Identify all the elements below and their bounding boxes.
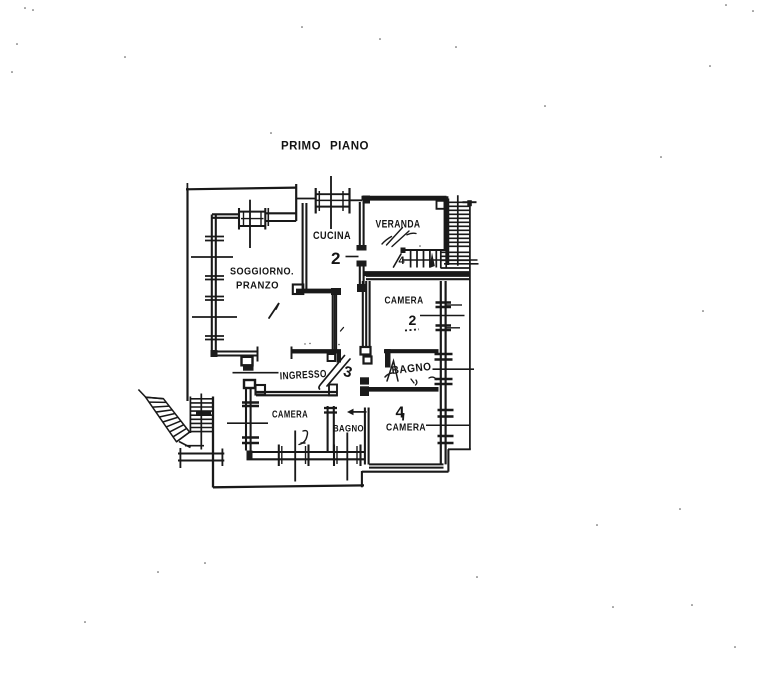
svg-text:CAMERA: CAMERA xyxy=(385,296,424,307)
svg-text:2: 2 xyxy=(331,249,341,268)
svg-text:PRANZO: PRANZO xyxy=(236,281,279,292)
svg-text:VERANDA: VERANDA xyxy=(376,219,421,231)
svg-text:SOGGIORNO.: SOGGIORNO. xyxy=(230,267,294,278)
svg-text:PRIMO: PRIMO xyxy=(281,139,321,153)
svg-text:2: 2 xyxy=(409,312,417,328)
svg-text:4: 4 xyxy=(399,255,406,267)
svg-text:CUCINA: CUCINA xyxy=(313,230,351,242)
svg-text:INGRESSO: INGRESSO xyxy=(280,368,328,382)
svg-text:CAMERA: CAMERA xyxy=(272,410,308,421)
svg-text:BAGNO: BAGNO xyxy=(333,424,364,435)
svg-text:PIANO: PIANO xyxy=(330,139,369,153)
svg-text:CAMERA: CAMERA xyxy=(386,423,426,434)
